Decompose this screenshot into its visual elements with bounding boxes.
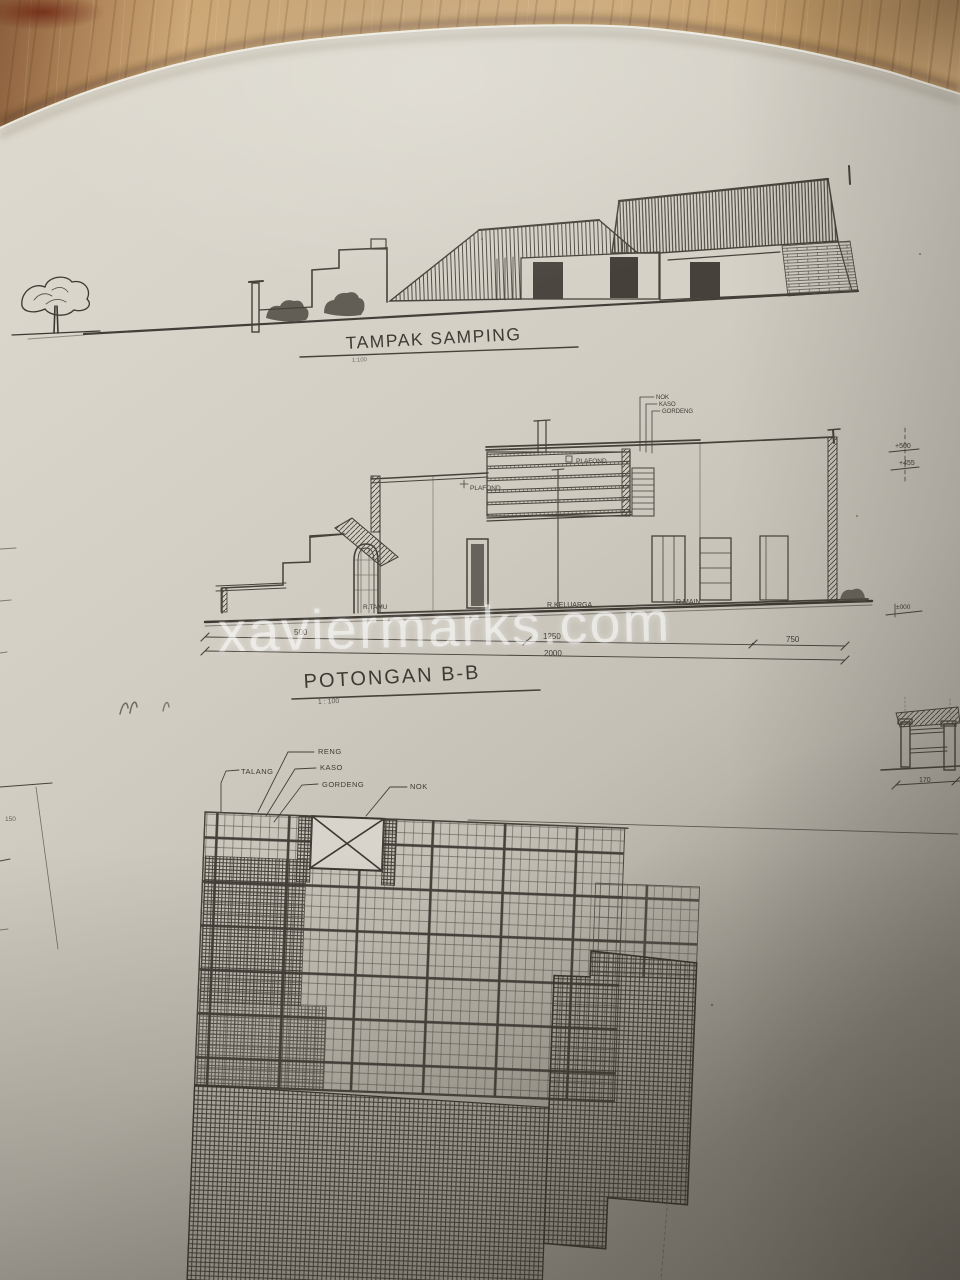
section-scale: 1 : 100 — [318, 698, 340, 706]
label-nok: NOK — [656, 395, 669, 401]
tiled-roof-area — [187, 1085, 549, 1280]
window-dark — [690, 262, 720, 298]
label-gordeng-plan: GORDENG — [322, 780, 364, 789]
label-kaso: KASO — [659, 402, 676, 408]
dense-framing-block — [200, 856, 307, 1006]
window-dark — [610, 257, 638, 298]
watermark: xaviermarks.com — [217, 588, 672, 664]
label-room-main: R.MAIN — [676, 599, 701, 606]
detail-dim-170: 170 — [919, 777, 931, 784]
brick-wall — [782, 241, 858, 296]
label-gordeng: GORDENG — [662, 409, 693, 415]
level-lower: +455 — [899, 460, 915, 467]
label-plafond-left: PLAFOND — [470, 485, 501, 492]
level-datum: ±000 — [896, 604, 911, 611]
elevation-scale: 1:100 — [352, 357, 368, 364]
roof-framing-band — [487, 452, 630, 516]
window-dark — [533, 262, 563, 299]
label-kaso-plan: KASO — [320, 763, 343, 772]
label-nok-plan: NOK — [410, 782, 428, 791]
blueprint-photo: TAMPAK SAMPING 1:100 NOK KASO GORDENG PL… — [0, 0, 960, 1280]
level-upper: +500 — [895, 443, 911, 450]
label-talang: TALANG — [241, 767, 273, 776]
dim-seg3: 750 — [786, 635, 800, 644]
label-plafond-right: PLAFOND — [576, 458, 607, 465]
label-reng: RENG — [318, 747, 342, 756]
left-edge-dim-150: 150 — [5, 816, 16, 823]
